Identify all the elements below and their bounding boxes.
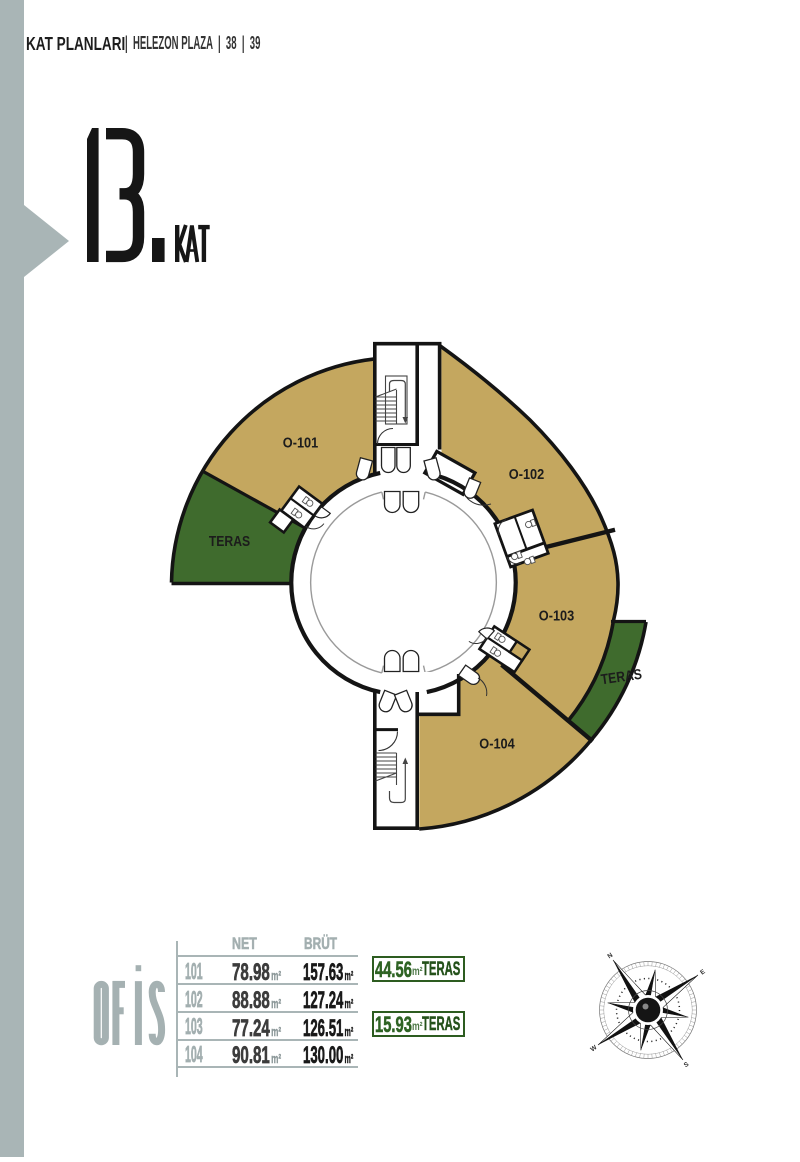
svg-text:TERAS: TERAS <box>209 533 250 549</box>
svg-text:E: E <box>699 968 707 977</box>
svg-text:O-104: O-104 <box>479 736 515 752</box>
svg-text:W: W <box>589 1044 599 1054</box>
svg-text:O-101: O-101 <box>283 435 319 451</box>
svg-text:O-103: O-103 <box>539 608 575 624</box>
svg-text:N: N <box>606 952 614 961</box>
svg-text:O-102: O-102 <box>509 466 545 482</box>
svg-text:S: S <box>683 1061 691 1070</box>
